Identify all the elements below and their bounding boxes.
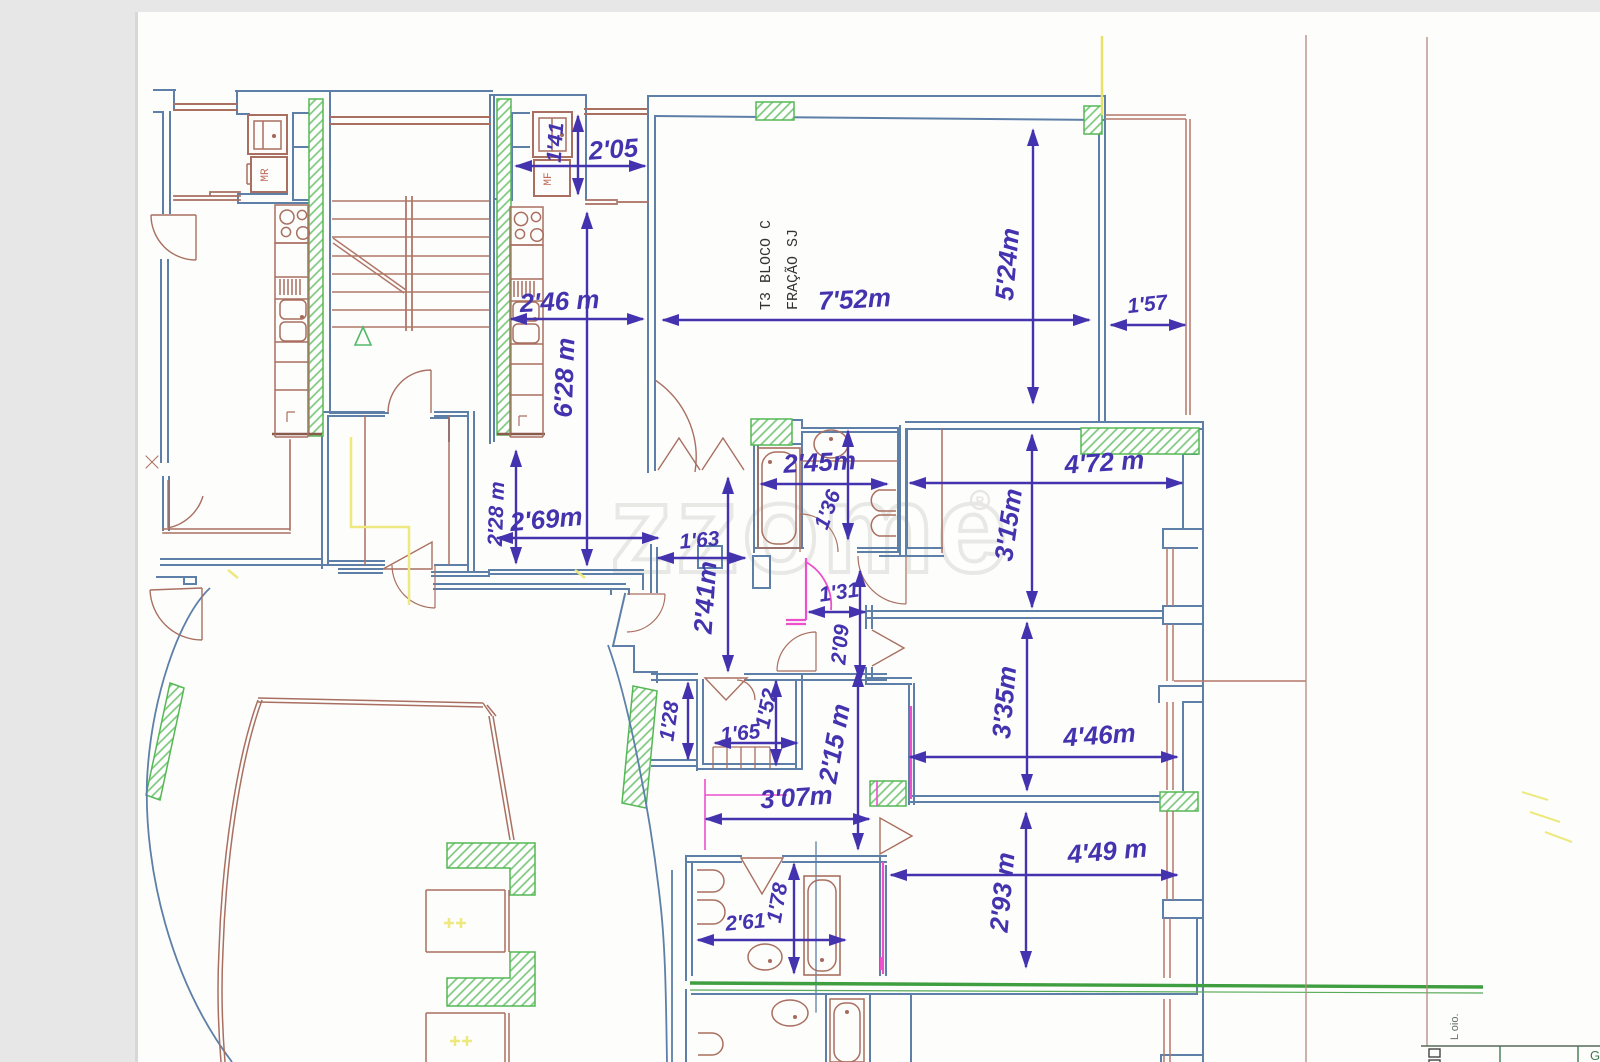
svg-text:1'57: 1'57 bbox=[1126, 291, 1170, 318]
svg-text:FRAÇÃO SJ: FRAÇÃO SJ bbox=[785, 229, 802, 310]
svg-text:2'09: 2'09 bbox=[827, 623, 854, 666]
svg-text:3'35m: 3'35m bbox=[986, 665, 1022, 740]
svg-text:R: R bbox=[976, 494, 985, 508]
svg-text:MF: MF bbox=[543, 172, 555, 185]
svg-text:2'45m: 2'45m bbox=[781, 445, 856, 479]
svg-text:2'61: 2'61 bbox=[723, 909, 766, 935]
svg-text:zzome: zzome bbox=[610, 458, 1010, 599]
svg-text:7'52m: 7'52m bbox=[817, 282, 891, 316]
svg-text:4'46m: 4'46m bbox=[1061, 718, 1137, 753]
svg-text:1'63: 1'63 bbox=[678, 527, 720, 553]
svg-text:G: G bbox=[1590, 1048, 1600, 1062]
svg-text:2'41m: 2'41m bbox=[687, 560, 722, 636]
svg-text:6'28 m: 6'28 m bbox=[548, 337, 581, 418]
svg-text:T3 BLOCO C: T3 BLOCO C bbox=[758, 220, 775, 310]
svg-text:4'72 m: 4'72 m bbox=[1062, 444, 1145, 480]
svg-text:L oio.: L oio. bbox=[1449, 1013, 1461, 1040]
svg-text:1'41: 1'41 bbox=[543, 122, 569, 164]
svg-text:2'05: 2'05 bbox=[587, 132, 640, 165]
svg-text:MR: MR bbox=[260, 168, 272, 182]
svg-text:2'46 m: 2'46 m bbox=[518, 284, 600, 318]
svg-text:5'24m: 5'24m bbox=[989, 227, 1025, 302]
svg-text:3'07m: 3'07m bbox=[759, 780, 834, 815]
svg-text:2'28 m: 2'28 m bbox=[484, 481, 509, 547]
svg-text:2'69m: 2'69m bbox=[508, 501, 584, 537]
